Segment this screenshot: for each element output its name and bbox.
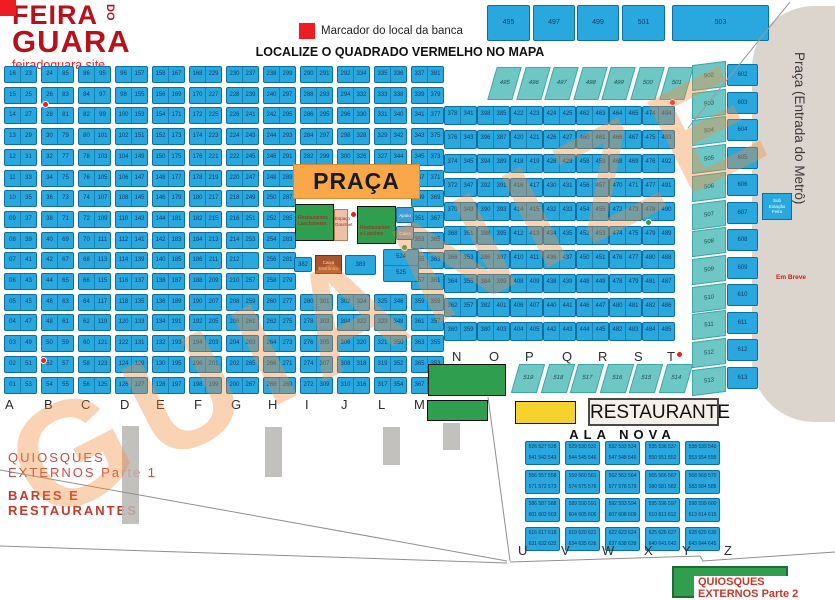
food-blue-top: Apoio — [396, 207, 414, 223]
kiosk-525: 525 — [384, 265, 418, 281]
stall-H-r12: 260277 — [263, 294, 296, 311]
column-letter-Q: Q — [562, 349, 572, 364]
stall-L-r15: 319352 — [374, 356, 407, 373]
stall-F-r3: 172225 — [189, 107, 222, 124]
cell-611: 611 — [727, 312, 758, 334]
stall-G-r1: 230237 — [226, 66, 259, 83]
restaurante-label: RESTAURANTE — [590, 402, 730, 423]
stall-H-r3: 242295 — [263, 107, 296, 124]
restaurante-box: RESTAURANTE — [588, 398, 719, 426]
column-letter-F: F — [194, 397, 202, 412]
ala-nova-cell-r1-c3: 532 533 534547 548 549 — [605, 441, 640, 465]
stall-nt-c4-r9: 440441 — [543, 298, 576, 317]
stall-nt-c3-r10: 404405 — [510, 322, 543, 341]
stall-B-r3: 2881 — [41, 107, 74, 124]
cell-612: 612 — [727, 339, 758, 361]
stall-B-r12: 4663 — [41, 294, 74, 311]
kiosk-382: 382 — [294, 257, 312, 272]
stall-nt-c7-r4: 477491 — [642, 178, 675, 197]
stall-C-r14: 60121 — [78, 335, 111, 352]
stall-A-r5: 1231 — [4, 149, 37, 166]
stall-L-r1: 335336 — [374, 66, 407, 83]
stall-D-r9: 112141 — [115, 232, 148, 249]
sub-estacao-line3: Feira — [763, 209, 791, 215]
stall-D-r7: 108145 — [115, 190, 148, 207]
stall-nt-c5-r4: 456457 — [576, 178, 609, 197]
stall-nt-c1-r1: 378341 — [444, 106, 477, 125]
stall-F-r4: 174223 — [189, 128, 222, 145]
stall-nt-c5-r3: 458459 — [576, 154, 609, 173]
stall-C-r4: 80101 — [78, 128, 111, 145]
stall-nt-c6-r3: 468469 — [609, 154, 642, 173]
stall-J-r2: 294332 — [337, 87, 370, 104]
stall-nt-c6-r9: 480481 — [609, 298, 642, 317]
stall-nt-c1-r2: 376343 — [444, 130, 477, 149]
stall-B-r14: 5059 — [41, 335, 74, 352]
column-letter-E: E — [156, 397, 165, 412]
ala-nova-cell-r3-c2: 589 590 591604 605 606 — [565, 498, 600, 522]
stall-B-r10: 4267 — [41, 252, 74, 269]
stall-G-r5: 222245 — [226, 149, 259, 166]
stall-nt-c5-r5: 454455 — [576, 202, 609, 221]
stall-F-r5: 176221 — [189, 149, 222, 166]
stall-C-r2: 8497 — [78, 87, 111, 104]
stall-A-r1: 1623 — [4, 66, 37, 83]
column-letter-C: C — [81, 397, 90, 412]
stall-E-r5: 150175 — [152, 149, 185, 166]
stall-nt-c5-r9: 446447 — [576, 298, 609, 317]
column-letter-V: V — [561, 543, 570, 558]
stall-nt-c3-r6: 412413 — [510, 226, 543, 245]
column-letter-B: B — [44, 397, 53, 412]
stall-nt-c7-r9: 482486 — [642, 298, 675, 317]
quiosques2-line2: EXTERNOS Parte 2 — [698, 588, 835, 600]
slant-col-511: 511 — [692, 310, 726, 340]
column-letter-D: D — [120, 397, 129, 412]
stall-G-r2: 228239 — [226, 87, 259, 104]
stall-nt-c5-r2: 460461 — [576, 130, 609, 149]
stall-H-r16: 268269 — [263, 377, 296, 394]
stall-E-r10: 140185 — [152, 252, 185, 269]
stall-A-r12: 0545 — [4, 294, 37, 311]
stall-L-r3: 331340 — [374, 107, 407, 124]
stall-nt-c4-r8: 438439 — [543, 274, 576, 293]
stall-nt-c2-r1: 398385 — [477, 106, 510, 125]
stall-nt-c3-r5: 414415 — [510, 202, 543, 221]
stall-nt-c2-r6: 388395 — [477, 226, 510, 245]
column-letter-I: I — [305, 397, 309, 412]
pillar-1 — [122, 426, 139, 524]
stall-nt-c7-r7: 480488 — [642, 250, 675, 269]
stall-D-r11: 116137 — [115, 273, 148, 290]
ala-nova-cell-r2-c1: 556 557 558571 572 573 — [525, 470, 560, 494]
stall-E-r7: 146179 — [152, 190, 185, 207]
stall-M-r13: 361357 — [411, 314, 444, 331]
column-letter-Z: Z — [724, 543, 732, 558]
cell-603: 603 — [727, 92, 758, 114]
column-letter-P: P — [525, 349, 534, 364]
ala-nova-cell-r4-c1: 616 617 618631 632 633 — [525, 527, 560, 551]
stall-nt-c7-r2: 475493 — [642, 130, 675, 149]
stall-F-r2: 170227 — [189, 87, 222, 104]
slant-col-502: 502 — [692, 61, 726, 91]
column-letter-S: S — [634, 349, 643, 364]
stall-M-r3: 341377 — [411, 107, 444, 124]
stall-E-r8: 144181 — [152, 211, 185, 228]
slant-col-504: 504 — [692, 116, 726, 146]
stall-L-r13: 323348 — [374, 314, 407, 331]
ala-nova-label: ALA NOVA — [525, 427, 720, 442]
stall-G-r4: 224243 — [226, 128, 259, 145]
cell-608: 608 — [727, 229, 758, 251]
stall-F-r15: 196201 — [189, 356, 222, 373]
stall-H-r4: 244293 — [263, 128, 296, 145]
ala-nova-cell-r4-c2: 619 620 621634 635 636 — [565, 527, 600, 551]
stall-D-r15: 124129 — [115, 356, 148, 373]
green-box-2 — [427, 400, 488, 421]
stall-M-r2: 339379 — [411, 87, 444, 104]
stall-I-r12: 280301 — [300, 294, 333, 311]
stall-nt-c2-r10: 380403 — [477, 322, 510, 341]
stall-H-r11: 258279 — [263, 273, 296, 290]
stall-M-r8: 351367 — [411, 211, 444, 228]
stall-F-r6: 178219 — [189, 170, 222, 187]
stall-I-r15: 274307 — [300, 356, 333, 373]
salmon-line1: Espaço — [335, 216, 347, 222]
stall-nt-c1-r8: 364355 — [444, 274, 477, 293]
slant-col-506: 506 — [692, 172, 726, 202]
entrance-marker-1 — [42, 101, 49, 108]
cell-605: 605 — [727, 147, 758, 169]
stall-G-r13: 206261 — [226, 314, 259, 331]
stall-C-r16: 56125 — [78, 377, 111, 394]
quiosques2-label: QUIOSQUES EXTERNOS Parte 2 — [694, 576, 835, 600]
stall-D-r8: 110143 — [115, 211, 148, 228]
stall-E-r11: 138187 — [152, 273, 185, 290]
stall-B-r11: 4465 — [41, 273, 74, 290]
column-letter-N: N — [452, 349, 461, 364]
bares-line2: RESTAURANTES — [8, 503, 138, 518]
food-left-line2: Lanchonetes — [298, 221, 333, 227]
stall-M-r14: 363355 — [411, 335, 444, 352]
stall-H-r13: 262275 — [263, 314, 296, 331]
stall-nt-c1-r6: 368351 — [444, 226, 477, 245]
stall-J-r12: 302324 — [337, 294, 370, 311]
stall-E-r16: 128197 — [152, 377, 185, 394]
stall-nt-c6-r1: 464465 — [609, 106, 642, 125]
food-right-green: Restaurantes e Lanches — [357, 206, 396, 244]
stall-nt-c5-r10: 444445 — [576, 322, 609, 341]
entrance-marker-2 — [40, 357, 47, 364]
salmon-line2: Gourmet — [335, 222, 347, 228]
ala-nova-cell-r1-c1: 526 527 528541 542 543 — [525, 441, 560, 465]
stall-C-r8: 72109 — [78, 211, 111, 228]
stall-nt-c3-r1: 422423 — [510, 106, 543, 125]
stall-A-r2: 1525 — [4, 87, 37, 104]
stall-G-r8: 216251 — [226, 211, 259, 228]
stall-nt-c3-r7: 410411 — [510, 250, 543, 269]
pillar-2 — [265, 427, 282, 477]
cell-607: 607 — [727, 202, 758, 224]
praca-title: PRAÇA — [313, 168, 400, 194]
stall-nt-c2-r3: 394389 — [477, 154, 510, 173]
stall-B-r9: 4069 — [41, 232, 74, 249]
stall-G-r7: 218249 — [226, 190, 259, 207]
column-letter-L: L — [378, 397, 385, 412]
stall-L-r4: 329342 — [374, 128, 407, 145]
green-box-1 — [428, 364, 506, 396]
stall-nt-c1-r10: 360359 — [444, 322, 477, 341]
cell-606: 606 — [727, 174, 758, 196]
stall-D-r1: 96157 — [115, 66, 148, 83]
stall-L-r16: 317354 — [374, 377, 407, 394]
stall-F-r13: 192205 — [189, 314, 222, 331]
stall-J-r13: 304322 — [337, 314, 370, 331]
stall-J-r16: 310316 — [337, 377, 370, 394]
stall-J-r15: 308318 — [337, 356, 370, 373]
stall-C-r7: 74107 — [78, 190, 111, 207]
feira-map: Praça (Entrada do Metrô) Em Breve FEIRA … — [0, 0, 835, 600]
stall-nt-c3-r4: 416417 — [510, 178, 543, 197]
stall-C-r13: 62119 — [78, 314, 111, 331]
stall-L-r14: 321350 — [374, 335, 407, 352]
stall-C-r12: 64117 — [78, 294, 111, 311]
pillar-3 — [383, 427, 400, 465]
stall-nt-c5-r8: 448449 — [576, 274, 609, 293]
column-letter-J: J — [341, 397, 348, 412]
kiosk-brown-box: Caixa Eletrônico — [315, 255, 342, 274]
stall-nt-c6-r6: 474475 — [609, 226, 642, 245]
stall-D-r10: 114139 — [115, 252, 148, 269]
slant-col-510: 510 — [692, 283, 726, 313]
stall-E-r4: 152173 — [152, 128, 185, 145]
stall-D-r6: 106147 — [115, 170, 148, 187]
yellow-box — [515, 401, 576, 424]
stall-nt-c4-r6: 434435 — [543, 226, 576, 245]
stall-nt-c2-r7: 386397 — [477, 250, 510, 269]
stall-A-r16: 0153 — [4, 377, 37, 394]
stall-H-r8: 252285 — [263, 211, 296, 228]
stall-E-r13: 134191 — [152, 314, 185, 331]
stall-H-r9: 254283 — [263, 232, 296, 249]
stall-nt-c6-r5: 472473 — [609, 202, 642, 221]
stall-F-r14: 194203 — [189, 335, 222, 352]
slant-bottom-518: 518 — [540, 364, 574, 393]
stall-G-r10: 212 — [226, 252, 259, 269]
stall-J-r1: 292334 — [337, 66, 370, 83]
stall-E-r9: 142183 — [152, 232, 185, 249]
brown-line2: Eletrônico — [316, 266, 341, 272]
stall-A-r7: 1035 — [4, 190, 37, 207]
stall-F-r10: 186211 — [189, 252, 222, 269]
ala-nova-cell-r3-c4: 595 596 597610 611 612 — [645, 498, 680, 522]
column-letter-M: M — [414, 397, 425, 412]
stall-H-r15: 266271 — [263, 356, 296, 373]
stall-A-r6: 1133 — [4, 170, 37, 187]
stall-nt-c5-r7: 450451 — [576, 250, 609, 269]
column-letter-Y: Y — [682, 543, 691, 558]
stall-nt-c2-r8: 384399 — [477, 274, 510, 293]
stall-C-r9: 70111 — [78, 232, 111, 249]
stall-nt-c4-r10: 442443 — [543, 322, 576, 341]
stall-A-r9: 0839 — [4, 232, 37, 249]
entrance-marker-7 — [401, 244, 408, 251]
ala-nova-cell-r2-c3: 562 563 564577 578 579 — [605, 470, 640, 494]
stall-F-r16: 198199 — [189, 377, 222, 394]
stall-E-r1: 158167 — [152, 66, 185, 83]
entrance-marker-5 — [350, 211, 357, 218]
stall-F-r7: 180217 — [189, 190, 222, 207]
stall-nt-c1-r7: 366353 — [444, 250, 477, 269]
top-box-501: 501 — [622, 5, 665, 41]
stall-nt-c3-r3: 418419 — [510, 154, 543, 173]
stall-I-r16: 272309 — [300, 377, 333, 394]
stall-I-r2: 288293 — [300, 87, 333, 104]
ala-nova-cell-r2-c2: 559 560 561574 575 576 — [565, 470, 600, 494]
slant-col-512: 512 — [692, 338, 726, 368]
stall-C-r6: 76105 — [78, 170, 111, 187]
stall-B-r8: 3871 — [41, 211, 74, 228]
column-letter-W: W — [602, 543, 614, 558]
stall-nt-c4-r3: 428429 — [543, 154, 576, 173]
stall-D-r4: 102151 — [115, 128, 148, 145]
ala-nova-cell-r2-c5: 568 569 570583 584 585 — [685, 470, 720, 494]
stall-F-r9: 184213 — [189, 232, 222, 249]
stall-B-r7: 3673 — [41, 190, 74, 207]
stall-nt-c7-r1: 474494 — [642, 106, 675, 125]
stall-L-r12: 325346 — [374, 294, 407, 311]
stall-A-r4: 1329 — [4, 128, 37, 145]
cell-604: 604 — [727, 119, 758, 141]
stall-H-r5: 246291 — [263, 149, 296, 166]
stall-nt-c2-r2: 396387 — [477, 130, 510, 149]
stall-nt-c2-r4: 392391 — [477, 178, 510, 197]
cell-610: 610 — [727, 284, 758, 306]
stall-J-r4: 298328 — [337, 128, 370, 145]
stall-A-r3: 1427 — [4, 107, 37, 124]
column-letter-T: T — [667, 349, 675, 364]
stall-A-r13: 0447 — [4, 314, 37, 331]
cell-613: 613 — [727, 367, 758, 389]
stall-H-r6: 248289 — [263, 170, 296, 187]
stall-nt-c2-r5: 390393 — [477, 202, 510, 221]
stall-H-r10: 256281 — [263, 252, 296, 269]
praca-box: PRAÇA — [293, 164, 420, 199]
kiosk-383: 383 — [345, 255, 376, 275]
slant-col-513: 513 — [692, 366, 726, 396]
slant-bottom-515: 515 — [629, 364, 663, 393]
stall-nt-c3-r9: 406407 — [510, 298, 543, 317]
stall-E-r3: 154171 — [152, 107, 185, 124]
stall-A-r15: 0251 — [4, 356, 37, 373]
stall-D-r2: 98155 — [115, 87, 148, 104]
stall-D-r3: 100153 — [115, 107, 148, 124]
stall-M-r9: 353365 — [411, 232, 444, 249]
slant-col-503: 503 — [692, 89, 726, 119]
stall-nt-c6-r7: 476477 — [609, 250, 642, 269]
ala-nova-cell-r1-c4: 535 536 537550 551 552 — [645, 441, 680, 465]
stall-I-r4: 284297 — [300, 128, 333, 145]
stall-H-r7: 250287 — [263, 190, 296, 207]
top-box-497: 497 — [533, 5, 575, 41]
stall-E-r12: 136189 — [152, 294, 185, 311]
stall-F-r8: 182215 — [189, 211, 222, 228]
entrance-marker-4 — [676, 351, 683, 358]
stall-B-r13: 4861 — [41, 314, 74, 331]
food-left-green: Restaurantes Lanchonetes — [295, 204, 334, 241]
stall-nt-c6-r4: 470471 — [609, 178, 642, 197]
stall-C-r1: 8695 — [78, 66, 111, 83]
stall-nt-c6-r10: 482483 — [609, 322, 642, 341]
stall-C-r3: 8299 — [78, 107, 111, 124]
stall-nt-c4-r1: 424425 — [543, 106, 576, 125]
stall-A-r8: 0937 — [4, 211, 37, 228]
stall-E-r6: 148177 — [152, 170, 185, 187]
cell-602: 602 — [727, 64, 758, 86]
stall-I-r3: 286295 — [300, 107, 333, 124]
stall-F-r11: 188209 — [189, 273, 222, 290]
stall-F-r1: 168229 — [189, 66, 222, 83]
stall-C-r15: 58123 — [78, 356, 111, 373]
stall-F-r12: 190207 — [189, 294, 222, 311]
food-right-line2: e Lanches — [360, 231, 395, 237]
stall-D-r12: 118135 — [115, 294, 148, 311]
slant-bottom-519: 519 — [511, 364, 545, 393]
stall-G-r6: 220247 — [226, 170, 259, 187]
entrance-marker-6 — [645, 219, 652, 226]
stall-G-r15: 202265 — [226, 356, 259, 373]
slant-bottom-517: 517 — [570, 364, 604, 393]
entrance-marker-3 — [669, 99, 676, 106]
stall-E-r15: 130195 — [152, 356, 185, 373]
food-salmon: Espaço Gourmet — [334, 209, 348, 241]
stall-C-r5: 78103 — [78, 149, 111, 166]
stall-nt-c4-r7: 436437 — [543, 250, 576, 269]
bares-line1: BARES E — [8, 488, 138, 503]
stall-nt-c4-r2: 426427 — [543, 130, 576, 149]
kiosk-524: 524 — [384, 250, 418, 265]
stall-nt-c1-r4: 372347 — [444, 178, 477, 197]
column-letter-A: A — [5, 397, 14, 412]
stall-G-r3: 226241 — [226, 107, 259, 124]
top-box-495: 495 — [487, 5, 530, 41]
ala-nova-cell-r2-c4: 565 566 567580 581 582 — [645, 470, 680, 494]
stall-J-r3: 296330 — [337, 107, 370, 124]
stall-B-r16: 5455 — [41, 377, 74, 394]
bares-label: BARES E RESTAURANTES — [8, 488, 138, 518]
ala-nova-cell-r1-c5: 538 539 540553 554 555 — [685, 441, 720, 465]
stall-C-r11: 66115 — [78, 273, 111, 290]
stall-B-r1: 2485 — [41, 66, 74, 83]
stall-L-r2: 333338 — [374, 87, 407, 104]
top-box-503: 503 — [672, 5, 769, 41]
column-letter-G: G — [231, 397, 241, 412]
stall-G-r16: 200267 — [226, 377, 259, 394]
stall-E-r14: 132193 — [152, 335, 185, 352]
stall-I-r13: 278303 — [300, 314, 333, 331]
stall-nt-c3-r2: 420421 — [510, 130, 543, 149]
stall-B-r5: 3277 — [41, 149, 74, 166]
ala-nova-cell-r3-c3: 592 593 594607 608 609 — [605, 498, 640, 522]
stall-G-r9: 214253 — [226, 232, 259, 249]
column-letter-X: X — [644, 543, 653, 558]
stall-M-r12: 359359 — [411, 294, 444, 311]
slant-col-509: 509 — [692, 255, 726, 285]
stall-I-r14: 276305 — [300, 335, 333, 352]
stall-nt-c1-r3: 374345 — [444, 154, 477, 173]
stall-nt-c7-r10: 484485 — [642, 322, 675, 341]
stall-D-r5: 104149 — [115, 149, 148, 166]
